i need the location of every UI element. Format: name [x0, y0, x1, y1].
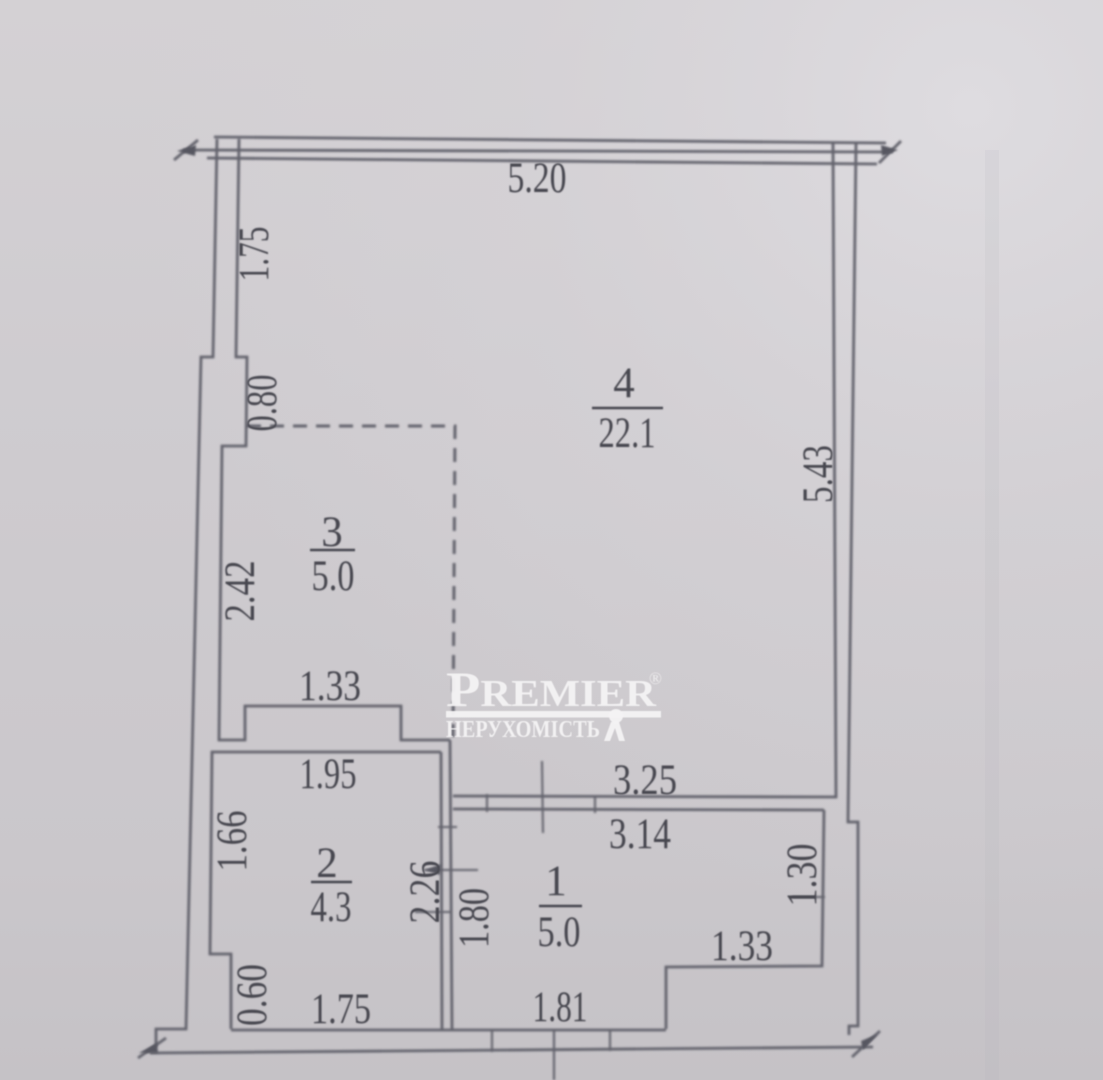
svg-text:0.60: 0.60 [229, 964, 276, 1026]
svg-text:1.33: 1.33 [711, 923, 773, 970]
svg-text:1.66: 1.66 [209, 811, 256, 872]
svg-text:4.3: 4.3 [311, 884, 352, 931]
svg-text:3.25: 3.25 [613, 757, 677, 804]
svg-text:1: 1 [545, 858, 567, 905]
svg-text:1.30: 1.30 [779, 844, 826, 907]
svg-text:3.14: 3.14 [609, 811, 671, 858]
svg-text:2.26: 2.26 [402, 861, 449, 924]
svg-text:1.75: 1.75 [311, 986, 371, 1033]
svg-text:22.1: 22.1 [599, 410, 656, 457]
svg-text:5.0: 5.0 [538, 909, 581, 956]
svg-text:НЕРУХОМІСТЬ: НЕРУХОМІСТЬ [446, 717, 600, 743]
svg-text:1.81: 1.81 [533, 984, 588, 1031]
svg-text:1.95: 1.95 [300, 751, 357, 798]
svg-text:1.80: 1.80 [451, 888, 498, 948]
svg-text:®: ® [649, 669, 662, 688]
svg-text:4: 4 [613, 360, 635, 407]
svg-text:5.20: 5.20 [508, 155, 567, 202]
svg-text:0.80: 0.80 [239, 375, 286, 432]
svg-text:5.0: 5.0 [312, 553, 355, 600]
svg-text:2.42: 2.42 [217, 561, 264, 622]
svg-text:2: 2 [316, 840, 338, 887]
svg-text:1.75: 1.75 [231, 227, 278, 282]
svg-text:5.43: 5.43 [795, 445, 842, 503]
svg-text:1.33: 1.33 [299, 663, 361, 710]
